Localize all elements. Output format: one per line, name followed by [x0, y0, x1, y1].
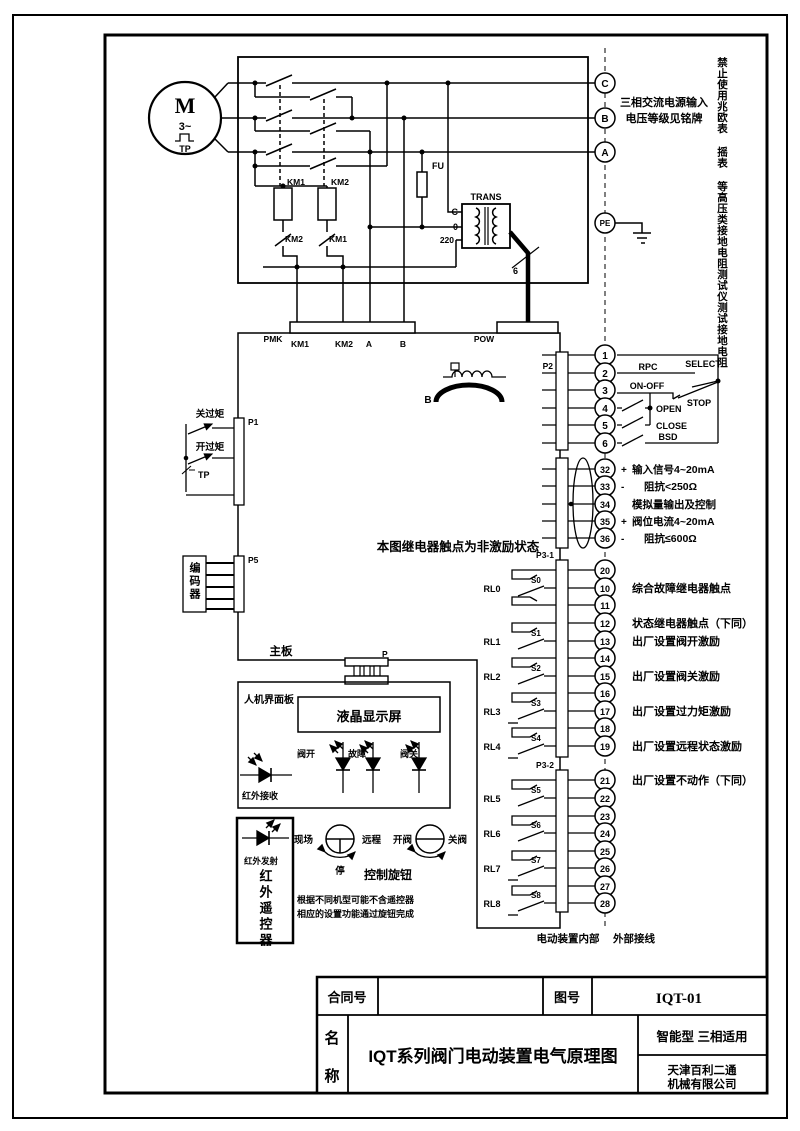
km2-coil — [318, 188, 336, 220]
rl0-label: RL0 — [483, 584, 500, 594]
power-input-note-2: 电压等级见铭牌 — [626, 111, 703, 125]
terminal-pe: PE — [600, 219, 611, 228]
tp-contact-label: TP — [198, 470, 210, 480]
ir-receive-label: 红外接收 — [242, 790, 278, 801]
schematic-page: M 3~ TP KM1 KM2 KM2 KM1 FU TRANS C 0 220… — [0, 0, 800, 1131]
label-impedance-600: 阻抗≤600Ω — [644, 532, 697, 545]
rl8-label: RL8 — [483, 899, 500, 909]
terminal-3: 3 — [602, 386, 608, 397]
pow-label: POW — [474, 334, 495, 344]
phase-terminals: C B A PE 三相交流电源输入 电压等级见铭牌 禁止使用兆欧表 摇表 等高压… — [595, 56, 728, 368]
label-no-action: 出厂设置不动作（下同） — [632, 773, 753, 787]
pmk-pin-km1: KM1 — [291, 339, 309, 349]
external-label: 外部接线 — [612, 932, 655, 945]
fuse-symbol — [417, 172, 427, 197]
sign-36: - — [621, 534, 624, 545]
drawing-no-label: 图号 — [554, 990, 580, 1005]
local-label: 现场 — [294, 834, 314, 846]
rl5-label: RL5 — [483, 794, 500, 804]
p-connector: P — [345, 649, 388, 684]
pmk-pin-b: B — [400, 339, 406, 349]
bsd-label: BSD — [658, 432, 678, 442]
mode-knob — [325, 825, 355, 857]
stop-label: STOP — [687, 398, 711, 408]
company-line-2: 机械有限公司 — [668, 1077, 737, 1091]
rl1-label: RL1 — [483, 637, 500, 647]
ir-transmit-label: 红外发射 — [244, 856, 279, 866]
select-label: SELECT — [685, 359, 721, 369]
terminal-1: 1 — [602, 351, 608, 362]
p2-label: P2 — [543, 361, 554, 371]
power-section — [149, 57, 595, 322]
terminal-35: 35 — [600, 517, 610, 527]
led-close-label: 阀关 — [400, 748, 418, 759]
ir-remote: 红外发射 红外遥控器 — [237, 818, 293, 949]
shielded-cable-symbol — [573, 458, 593, 548]
label-impedance-250: 阻抗<250Ω — [644, 480, 697, 493]
p1-section: P1 关过矩 开过矩 TP — [182, 408, 259, 505]
km2-nc-label: KM1 — [329, 234, 347, 244]
title-block: 合同号 图号 IQT-01 名 称 IQT系列阀门电动装置电气原理图 智能型 三… — [317, 977, 767, 1093]
terminal-23: 23 — [600, 812, 610, 822]
s6-label: S6 — [531, 821, 541, 830]
terminal-a: A — [601, 148, 608, 159]
terminal-26: 26 — [600, 864, 610, 874]
trans-tap-220: 220 — [440, 235, 454, 245]
terminal-16: 16 — [600, 689, 610, 699]
km1-coil-label: KM1 — [287, 177, 305, 187]
terminal-b: B — [601, 114, 608, 125]
rl3-label: RL3 — [483, 707, 500, 717]
sign-32: + — [621, 465, 627, 476]
motor-phase: 3~ — [179, 121, 192, 133]
trans-tap-0: 0 — [453, 222, 458, 232]
p31-label: P3-1 — [536, 550, 554, 560]
s7-label: S7 — [531, 856, 541, 865]
rl2-label: RL2 — [483, 672, 500, 682]
s5-label: S5 — [531, 786, 541, 795]
label-open-excite: 出厂设置阀开激励 — [632, 634, 720, 648]
control-knob-label: 控制旋钮 — [364, 867, 412, 882]
label-overtorque-excite: 出厂设置过力矩激励 — [632, 704, 731, 718]
terminal-24: 24 — [600, 829, 610, 839]
fuse-label: FU — [432, 161, 444, 171]
pmk-pin-km2: KM2 — [335, 339, 353, 349]
terminal-5: 5 — [602, 421, 608, 432]
megger-warning: 禁止使用兆欧表 摇表 等高压类接地电阻测试仪测试接地电阻 — [716, 56, 728, 368]
label-fault-relay: 综合故障继电器触点 — [632, 581, 731, 595]
name-char-2: 称 — [324, 1067, 339, 1085]
transformer-symbol — [462, 204, 510, 248]
p32-section: P3-2 21 22 23 24 25 26 27 28 RL5 RL6 R — [483, 760, 753, 915]
p5-section: P5 编码器 — [183, 555, 259, 612]
schematic-drawing: M 3~ TP KM1 KM2 KM2 KM1 FU TRANS C 0 220… — [0, 0, 800, 1131]
p2-section: P2 1 2 3 4 5 6 RPC SELECT ON-OFF STOP OP… — [542, 345, 721, 453]
close-label: CLOSE — [656, 421, 687, 431]
terminal-c: C — [601, 79, 608, 90]
terminal-22: 22 — [600, 794, 610, 804]
rpc-label: RPC — [638, 362, 658, 372]
hmi-panel: 人机界面板 液晶显示屏 红外接收 阀开 故障 — [238, 682, 450, 808]
terminal-10: 10 — [600, 584, 610, 594]
motor-tp: TP — [179, 144, 191, 154]
km1-nc-label: KM2 — [285, 234, 303, 244]
terminal-21: 21 — [600, 776, 610, 786]
lcd-label: 液晶显示屏 — [336, 709, 401, 724]
contract-no-label: 合同号 — [327, 990, 366, 1005]
rl4-label: RL4 — [483, 742, 500, 752]
relay-state-note: 本图继电器触点为非激励状态 — [377, 539, 540, 554]
valve-knob — [415, 825, 445, 857]
main-board-label: 主板 — [270, 644, 293, 658]
rl7-label: RL7 — [483, 864, 500, 874]
label-status-relay: 状态继电器触点（下同） — [632, 616, 753, 630]
s4-label: S4 — [531, 734, 541, 743]
pmk-label: PMK — [264, 334, 284, 344]
ground-symbol — [615, 223, 651, 243]
s2-label: S2 — [531, 664, 541, 673]
motor-letter: M — [175, 93, 196, 118]
terminal-25: 25 — [600, 847, 610, 857]
open-label: OPEN — [656, 404, 682, 414]
knob-note-1: 根据不同机型可能不含遥控器 — [297, 894, 415, 905]
terminal-17: 17 — [600, 707, 610, 717]
company-line-1: 天津百利二通 — [668, 1063, 737, 1077]
drawing-no-value: IQT-01 — [656, 991, 702, 1007]
encoder-label: 编码器 — [188, 561, 202, 601]
phase-inductor — [436, 363, 506, 402]
terminal-36: 36 — [600, 534, 610, 544]
p4-section: 32 33 34 35 36 + - + - 输入信号4~20mA 阻抗<250… — [542, 458, 716, 548]
inductor-label: B — [424, 395, 431, 406]
motor-tp-glyph — [175, 134, 194, 141]
core-count: 6 — [513, 266, 518, 276]
terminal-15: 15 — [600, 672, 610, 682]
terminal-4: 4 — [602, 404, 608, 415]
label-remote-excite: 出厂设置远程状态激励 — [632, 739, 742, 753]
terminal-2: 2 — [602, 369, 608, 380]
control-knobs: 现场 远程 停 开阀 关阀 控制旋钮 根据不同机型可能不含遥控器 相应的设置功能… — [294, 825, 467, 919]
terminal-20: 20 — [600, 566, 610, 576]
s3-label: S3 — [531, 699, 541, 708]
terminal-18: 18 — [600, 724, 610, 734]
sign-33: - — [621, 482, 624, 493]
label-input-signal: 输入信号4~20mA — [632, 463, 715, 476]
ir-receiver-icon — [240, 753, 292, 782]
terminal-27: 27 — [600, 882, 610, 892]
p32-label: P3-2 — [536, 760, 554, 770]
internal-label: 电动装置内部 — [537, 932, 600, 945]
p1-label: P1 — [248, 417, 259, 427]
open-overtorque-label: 开过矩 — [196, 441, 225, 453]
rl6-label: RL6 — [483, 829, 500, 839]
open-valve-label: 开阀 — [393, 834, 412, 846]
power-input-note-1: 三相交流电源输入 — [620, 95, 708, 109]
page-borders — [13, 15, 787, 1118]
boundary-labels: 电动装置内部 外部接线 — [537, 932, 656, 945]
pmk-pin-a: A — [366, 339, 372, 349]
km1-coil — [274, 188, 292, 220]
sign-35: + — [621, 517, 627, 528]
knob-note-2: 相应的设置功能通过旋钮完成 — [297, 908, 414, 919]
name-char-1: 名 — [324, 1029, 339, 1047]
top-connectors: PMK KM1 KM2 A B POW — [264, 322, 558, 349]
trans-tap-c: C — [452, 207, 459, 217]
terminal-28: 28 — [600, 899, 610, 909]
trans-label: TRANS — [471, 192, 502, 202]
remote-label: 远程 — [362, 834, 382, 846]
ir-transmit-icon — [242, 820, 289, 845]
led-fault-label: 故障 — [348, 748, 366, 759]
s0-label: S0 — [531, 576, 541, 585]
label-close-excite: 出厂设置阀关激励 — [632, 669, 720, 683]
p31-section: P3-1 20 10 — [483, 550, 753, 758]
terminal-19: 19 — [600, 742, 610, 752]
terminal-11: 11 — [600, 601, 610, 611]
terminal-14: 14 — [600, 654, 610, 664]
close-valve-label: 关阀 — [448, 834, 467, 846]
terminal-13: 13 — [600, 637, 610, 647]
onoff-label: ON-OFF — [630, 381, 665, 391]
ir-remote-label: 红外遥控器 — [258, 868, 274, 949]
label-valve-current: 阀位电流4~20mA — [632, 515, 715, 528]
s1-label: S1 — [531, 629, 541, 638]
terminal-6: 6 — [602, 439, 608, 450]
terminal-33: 33 — [600, 482, 610, 492]
close-overtorque-label: 关过矩 — [196, 408, 225, 420]
type-note: 智能型 三相适用 — [656, 1029, 748, 1044]
s8-label: S8 — [531, 891, 541, 900]
terminal-32: 32 — [600, 465, 610, 475]
stop-knob-label: 停 — [335, 865, 345, 877]
label-analog-output: 模拟量输出及控制 — [632, 498, 716, 511]
led-open-label: 阀开 — [297, 748, 315, 759]
terminal-12: 12 — [600, 619, 610, 629]
terminal-34: 34 — [600, 500, 610, 510]
hmi-panel-label: 人机界面板 — [244, 693, 295, 706]
p5-label: P5 — [248, 555, 259, 565]
drawing-title: IQT系列阀门电动装置电气原理图 — [368, 1046, 617, 1066]
km2-coil-label: KM2 — [331, 177, 349, 187]
